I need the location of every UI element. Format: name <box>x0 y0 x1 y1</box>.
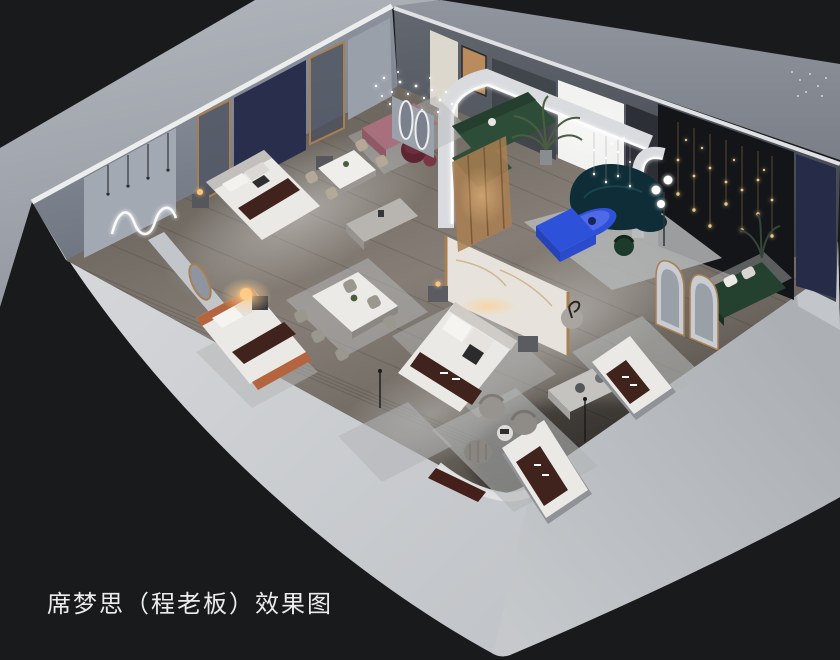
arched-mirror-stand-1 <box>656 261 684 336</box>
nightstand-a-lamp <box>197 189 203 195</box>
teal-sofa-chaise <box>633 212 667 232</box>
oval-mirror-1 <box>400 101 413 139</box>
nightstand-a-left <box>192 194 209 208</box>
navy-accent-wall <box>796 154 836 298</box>
bench-cushion-1 <box>575 383 585 393</box>
nightstand-b-left <box>428 286 448 302</box>
screen-warm-glow <box>458 166 506 226</box>
oval-mirror-2 <box>416 111 429 149</box>
dining2-plant <box>351 295 358 302</box>
sideboard-decor <box>378 210 384 217</box>
sofa-pillow-white <box>488 118 496 126</box>
render-canvas: 席梦思（程老板）效果图 <box>0 0 840 660</box>
render-title: 席梦思（程老板）效果图 <box>47 590 333 618</box>
arched-mirror-stand-2 <box>690 275 718 350</box>
sphere-lamp-glow <box>220 278 272 314</box>
nightstand-b-lamp <box>435 281 440 286</box>
showroom-render: 席梦思（程老板）效果图 <box>0 0 840 660</box>
palm-pot <box>540 150 552 165</box>
side-table-books <box>500 429 509 434</box>
green-accent-chair <box>614 236 634 256</box>
dining1-plant <box>343 161 349 167</box>
glass-partition-right <box>310 42 344 144</box>
nightstand-b-right <box>518 336 538 352</box>
table-decor-bowl <box>588 217 596 225</box>
